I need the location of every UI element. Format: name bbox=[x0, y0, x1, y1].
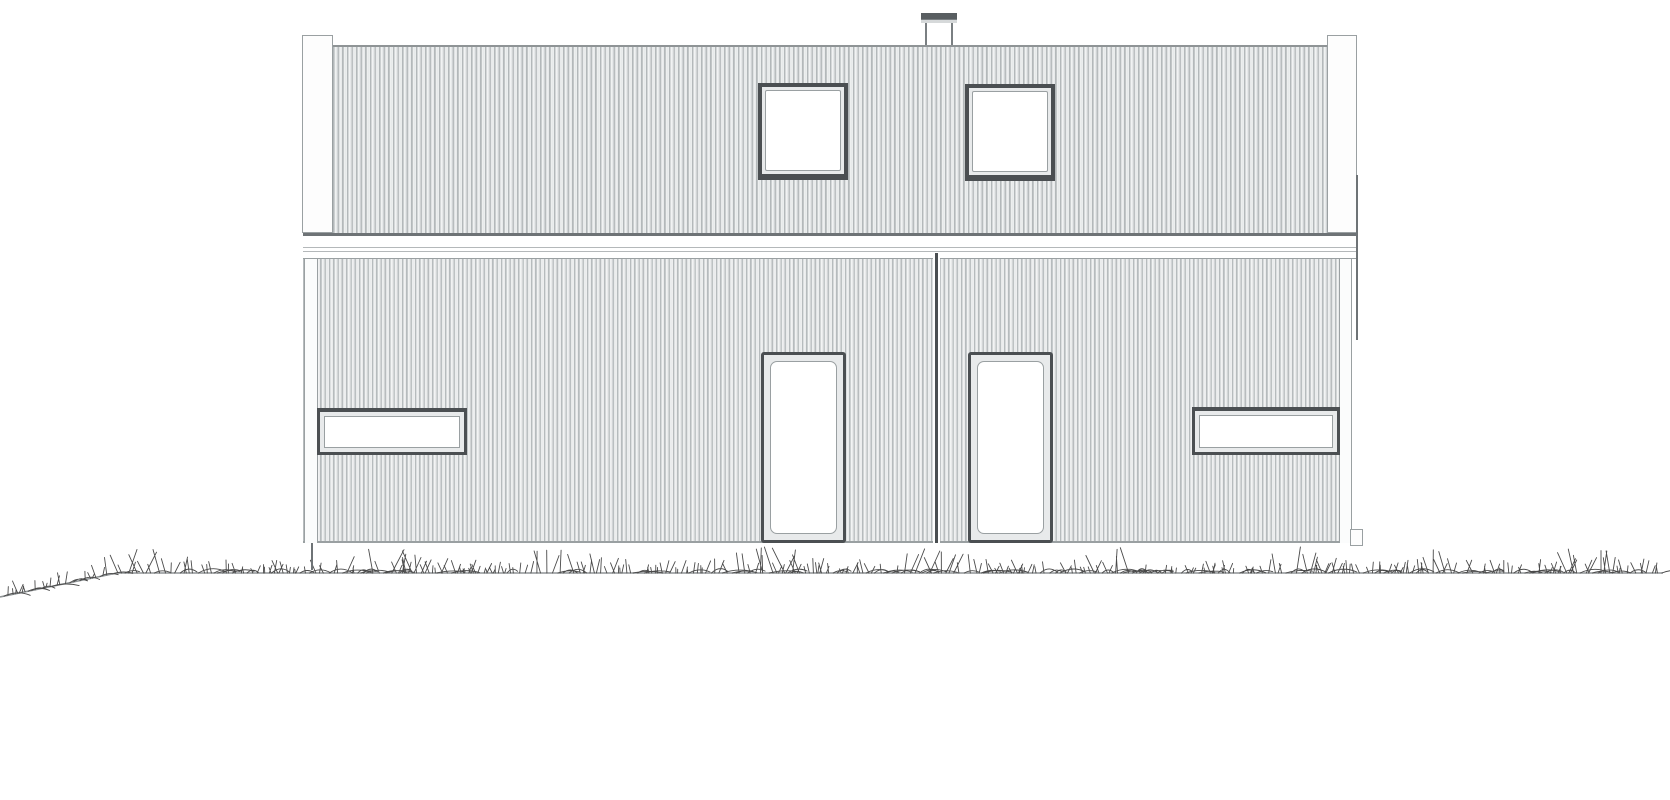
elevation-drawing bbox=[0, 0, 1670, 800]
door-right bbox=[968, 352, 1053, 543]
roof-edge-line-right bbox=[1356, 175, 1358, 340]
corner-post-left bbox=[302, 35, 333, 233]
chimney-cap bbox=[921, 13, 957, 23]
strip-window-left bbox=[317, 408, 467, 455]
corner-post-right bbox=[1327, 35, 1357, 233]
downpipe-right bbox=[1339, 259, 1352, 543]
chimney-body bbox=[925, 21, 953, 47]
upper-window-left bbox=[758, 83, 848, 178]
strip-window-right bbox=[1192, 407, 1340, 455]
upper-window-right bbox=[965, 84, 1055, 179]
downpipe-shoe-right bbox=[1350, 529, 1363, 546]
door-left bbox=[761, 352, 846, 543]
party-wall-divider bbox=[933, 253, 940, 543]
downpipe-left bbox=[304, 259, 318, 543]
fascia-band bbox=[303, 233, 1357, 259]
downpipe-shoe-left bbox=[311, 543, 313, 570]
